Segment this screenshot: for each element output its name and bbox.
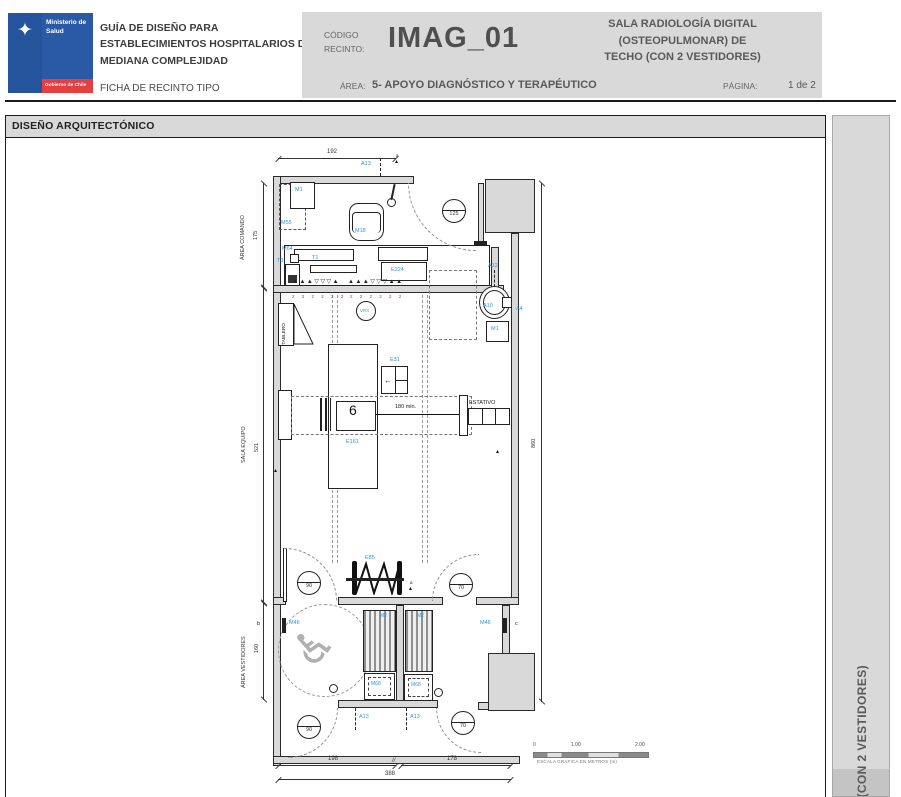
vrx-label: VRX xyxy=(360,309,369,314)
section-marker-icon: ▴ xyxy=(274,468,277,474)
a13-leader-br xyxy=(406,708,407,730)
keyboard xyxy=(310,265,357,273)
door-frame-pier xyxy=(478,183,484,243)
door-tag-main: 125 xyxy=(442,199,466,223)
dim-bottom-total: 388 xyxy=(385,771,395,777)
m2-right-label: M2 xyxy=(417,614,424,619)
a12-label: A12 xyxy=(488,264,498,270)
government-label: Gobierno de Chile xyxy=(45,83,86,88)
m68-right-label: M68 xyxy=(411,683,421,688)
m46-left-label: M46 xyxy=(289,621,300,627)
section-marker-icon: ▴ xyxy=(496,449,499,455)
dim-line-equipo xyxy=(263,288,264,603)
dim-break-mark: // xyxy=(392,758,395,764)
door-tag-90-upper: 90 xyxy=(297,571,321,595)
a13-top-label: A13 xyxy=(361,162,371,168)
document-page: ✦ Ministerio deSalud Gobierno de Chile G… xyxy=(0,0,901,797)
dim-bottom-left: 198 xyxy=(328,756,338,762)
area-label: ÁREA: xyxy=(340,81,366,91)
sidebar-vertical-text: O (CON 2 VESTIDORES) xyxy=(855,665,869,797)
a13-br-label: A13 xyxy=(410,715,420,721)
marker-b: b xyxy=(257,622,260,628)
dim-top-width: 192 xyxy=(327,149,337,155)
header-divider xyxy=(5,100,896,102)
t1-desk-unit xyxy=(294,249,354,261)
dim-line-comando xyxy=(263,183,264,288)
transfer-zone xyxy=(291,396,472,435)
m1-wall-label: M1 xyxy=(491,327,499,333)
estativo-column xyxy=(459,395,468,436)
m2-left-label: M2 xyxy=(380,614,387,619)
m2-bench-right xyxy=(405,610,433,672)
door-tag-70-upper: 70 xyxy=(449,573,473,597)
room-code: IMAG_01 xyxy=(388,22,519,55)
dim-line-vestidores xyxy=(263,603,264,700)
shaft-block-top xyxy=(485,179,535,233)
sheet-type-label: FICHA DE RECINTO TIPO xyxy=(100,83,220,94)
dim-line-right xyxy=(541,183,542,702)
e31-label: E31 xyxy=(390,358,400,364)
marker-c: c xyxy=(515,622,518,628)
dim-vestidores-depth: 160 xyxy=(255,644,262,653)
area-value: 5- APOYO DIAGNÓSTICO Y TERAPÉUTICO xyxy=(372,79,597,91)
dim-line-top xyxy=(278,158,396,159)
a10-label: A10 xyxy=(483,304,493,310)
scale-two: 2.00 xyxy=(635,743,645,748)
m55-label: M55 xyxy=(281,221,292,227)
logo-government-band: Gobierno de Chile xyxy=(42,79,93,93)
page-label: PÁGINA: xyxy=(723,81,757,91)
section-marker-icon: ▴ xyxy=(409,586,412,592)
a10-tap xyxy=(502,297,512,308)
door-tag-70-lower: 70 xyxy=(451,711,475,735)
a4-label: A4 xyxy=(516,307,523,313)
wall-vestidores-top xyxy=(338,597,443,605)
m18-label: M18 xyxy=(355,229,366,235)
marker-a-letter: a xyxy=(410,581,413,586)
e31-unit: ← xyxy=(381,366,408,394)
outlet-symbols-right: ▲▲▲▽▽▽▲▲ xyxy=(348,279,404,285)
page-value: 1 de 2 xyxy=(788,80,816,91)
t1-small-box xyxy=(290,254,299,263)
t3-label: T3 xyxy=(277,259,283,265)
a13-leader-bl xyxy=(355,708,356,730)
estativo-label: ESTATIVO xyxy=(469,401,495,407)
logo-emblem-panel: ✦ xyxy=(8,13,42,93)
outlet-symbols-left: ▲▲▲▽▽▽▲ xyxy=(292,279,340,285)
m46-right-label: M46 xyxy=(480,621,491,627)
dim-total-height: 860 xyxy=(532,439,539,448)
hook-right-icon xyxy=(434,688,443,697)
m46-mirror-right xyxy=(503,618,507,633)
circuit-numbers-left: 2 2 2 2 2 2 xyxy=(292,295,346,300)
section-title-bar: DISEÑO ARQUITECTÓNICO xyxy=(6,116,825,138)
wall-vestidores-center xyxy=(396,605,404,705)
m18-chair xyxy=(349,203,384,241)
wall-cabinet-left xyxy=(278,390,292,440)
e31-arrow-icon: ← xyxy=(384,376,392,385)
clearance-dim: 180 min. xyxy=(395,405,416,411)
a13-bl-label: A13 xyxy=(359,715,369,721)
e161-label: E161 xyxy=(346,440,359,446)
circuit-numbers-right: 2 2 2 2 2 2 xyxy=(350,295,404,300)
m46-mirror-left xyxy=(282,618,286,633)
estativo-holder xyxy=(468,408,510,425)
m2-bench-left xyxy=(363,610,396,672)
code-label: CÓDIGORECINTO: xyxy=(324,28,364,56)
scale-bar: 0 1.00 2.00 ESCALA GRAFICA EN METROS (m) xyxy=(531,741,651,767)
scale-bar-strip xyxy=(533,752,649,758)
e85-crossbar xyxy=(346,578,404,581)
guide-title: GUÍA DE DISEÑO PARA ESTABLECIMIENTOS HOS… xyxy=(100,20,315,69)
shaft-block-bottom xyxy=(488,653,535,711)
m68-left-label: M68 xyxy=(371,682,381,687)
tablero-flap-icon xyxy=(294,303,315,346)
ministry-logo: ✦ Ministerio deSalud Gobierno de Chile xyxy=(8,13,93,93)
wall-vestidores-top-right xyxy=(476,597,519,605)
door-arc-main xyxy=(408,183,476,251)
t1-label: T1 xyxy=(312,256,318,262)
floor-plan: M1 M55 M18 M64 T1 T3 E224 ▲▲▲▽▽▽▲ ▲▲▲▽▽▽… xyxy=(6,137,825,797)
dim-bottom-right: 178 xyxy=(447,756,457,762)
hook-left-icon xyxy=(329,684,338,693)
scale-caption: ESCALA GRAFICA EN METROS (m) xyxy=(537,760,617,765)
section-title: DISEÑO ARQUITECTÓNICO xyxy=(12,120,155,132)
tube-column-rails xyxy=(320,398,331,431)
zone-equipo-label: SALA EQUIPO xyxy=(242,426,249,463)
e85-label: E85 xyxy=(365,556,375,562)
zone-comando-label: ÁREA COMANDO xyxy=(241,215,248,260)
dim-comando-depth: 175 xyxy=(254,231,261,240)
tube-pivot-icon: 6 xyxy=(349,402,357,418)
tube-carriage: 6 xyxy=(336,401,376,431)
dim-line-bottom-right xyxy=(401,765,511,766)
right-sidebar-strip: O (CON 2 VESTIDORES) xyxy=(832,115,890,797)
scale-zero: 0 xyxy=(533,743,536,748)
room-name: SALA RADIOLOGÍA DIGITAL(OSTEOPULMONAR) D… xyxy=(560,16,805,66)
zone-vestidores-label: ÁREA VESTIDORES xyxy=(242,636,249,688)
logo-ministry-panel: Ministerio deSalud xyxy=(42,13,93,79)
m64-label: M64 xyxy=(282,247,293,253)
e224-monitor xyxy=(378,247,428,261)
scale-one: 1.00 xyxy=(571,743,581,748)
door-tag-90-lower: 90 xyxy=(297,715,321,739)
tablero-label: TABLERO xyxy=(283,323,290,345)
coat-of-arms-icon: ✦ xyxy=(13,19,37,43)
a13-top-leader xyxy=(380,158,381,176)
design-section: DISEÑO ARQUITECTÓNICO M1 xyxy=(5,115,826,797)
section-marker-icon: ▴ xyxy=(395,159,398,165)
tube-park-zone xyxy=(429,270,477,340)
e224-label: E224 xyxy=(391,268,404,274)
dim-equipo-depth: 521 xyxy=(255,443,262,452)
wall-corridor xyxy=(338,700,438,708)
dim-line-bottom-total xyxy=(278,779,511,780)
m1-label: M1 xyxy=(295,188,303,194)
wall-right xyxy=(511,233,519,605)
dim-line-bottom-left xyxy=(278,765,396,766)
ministry-name: Ministerio deSalud xyxy=(46,19,86,37)
